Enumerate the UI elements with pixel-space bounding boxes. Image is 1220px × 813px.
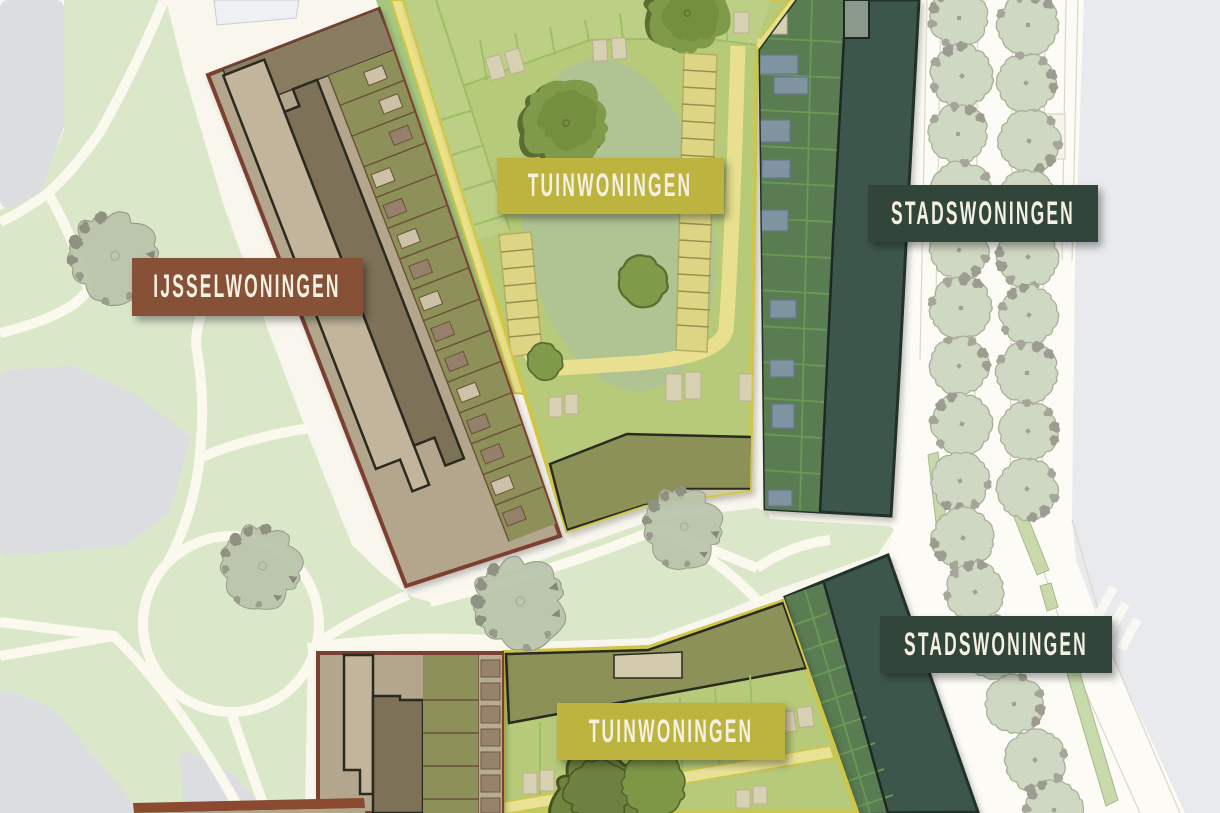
svg-text:TUINWONINGEN: TUINWONINGEN [589,715,754,750]
svg-text:STADSWONINGEN: STADSWONINGEN [891,197,1075,232]
svg-text:TUINWONINGEN: TUINWONINGEN [528,169,693,204]
svg-text:IJSSELWONINGEN: IJSSELWONINGEN [153,270,340,305]
svg-text:STADSWONINGEN: STADSWONINGEN [904,628,1088,663]
